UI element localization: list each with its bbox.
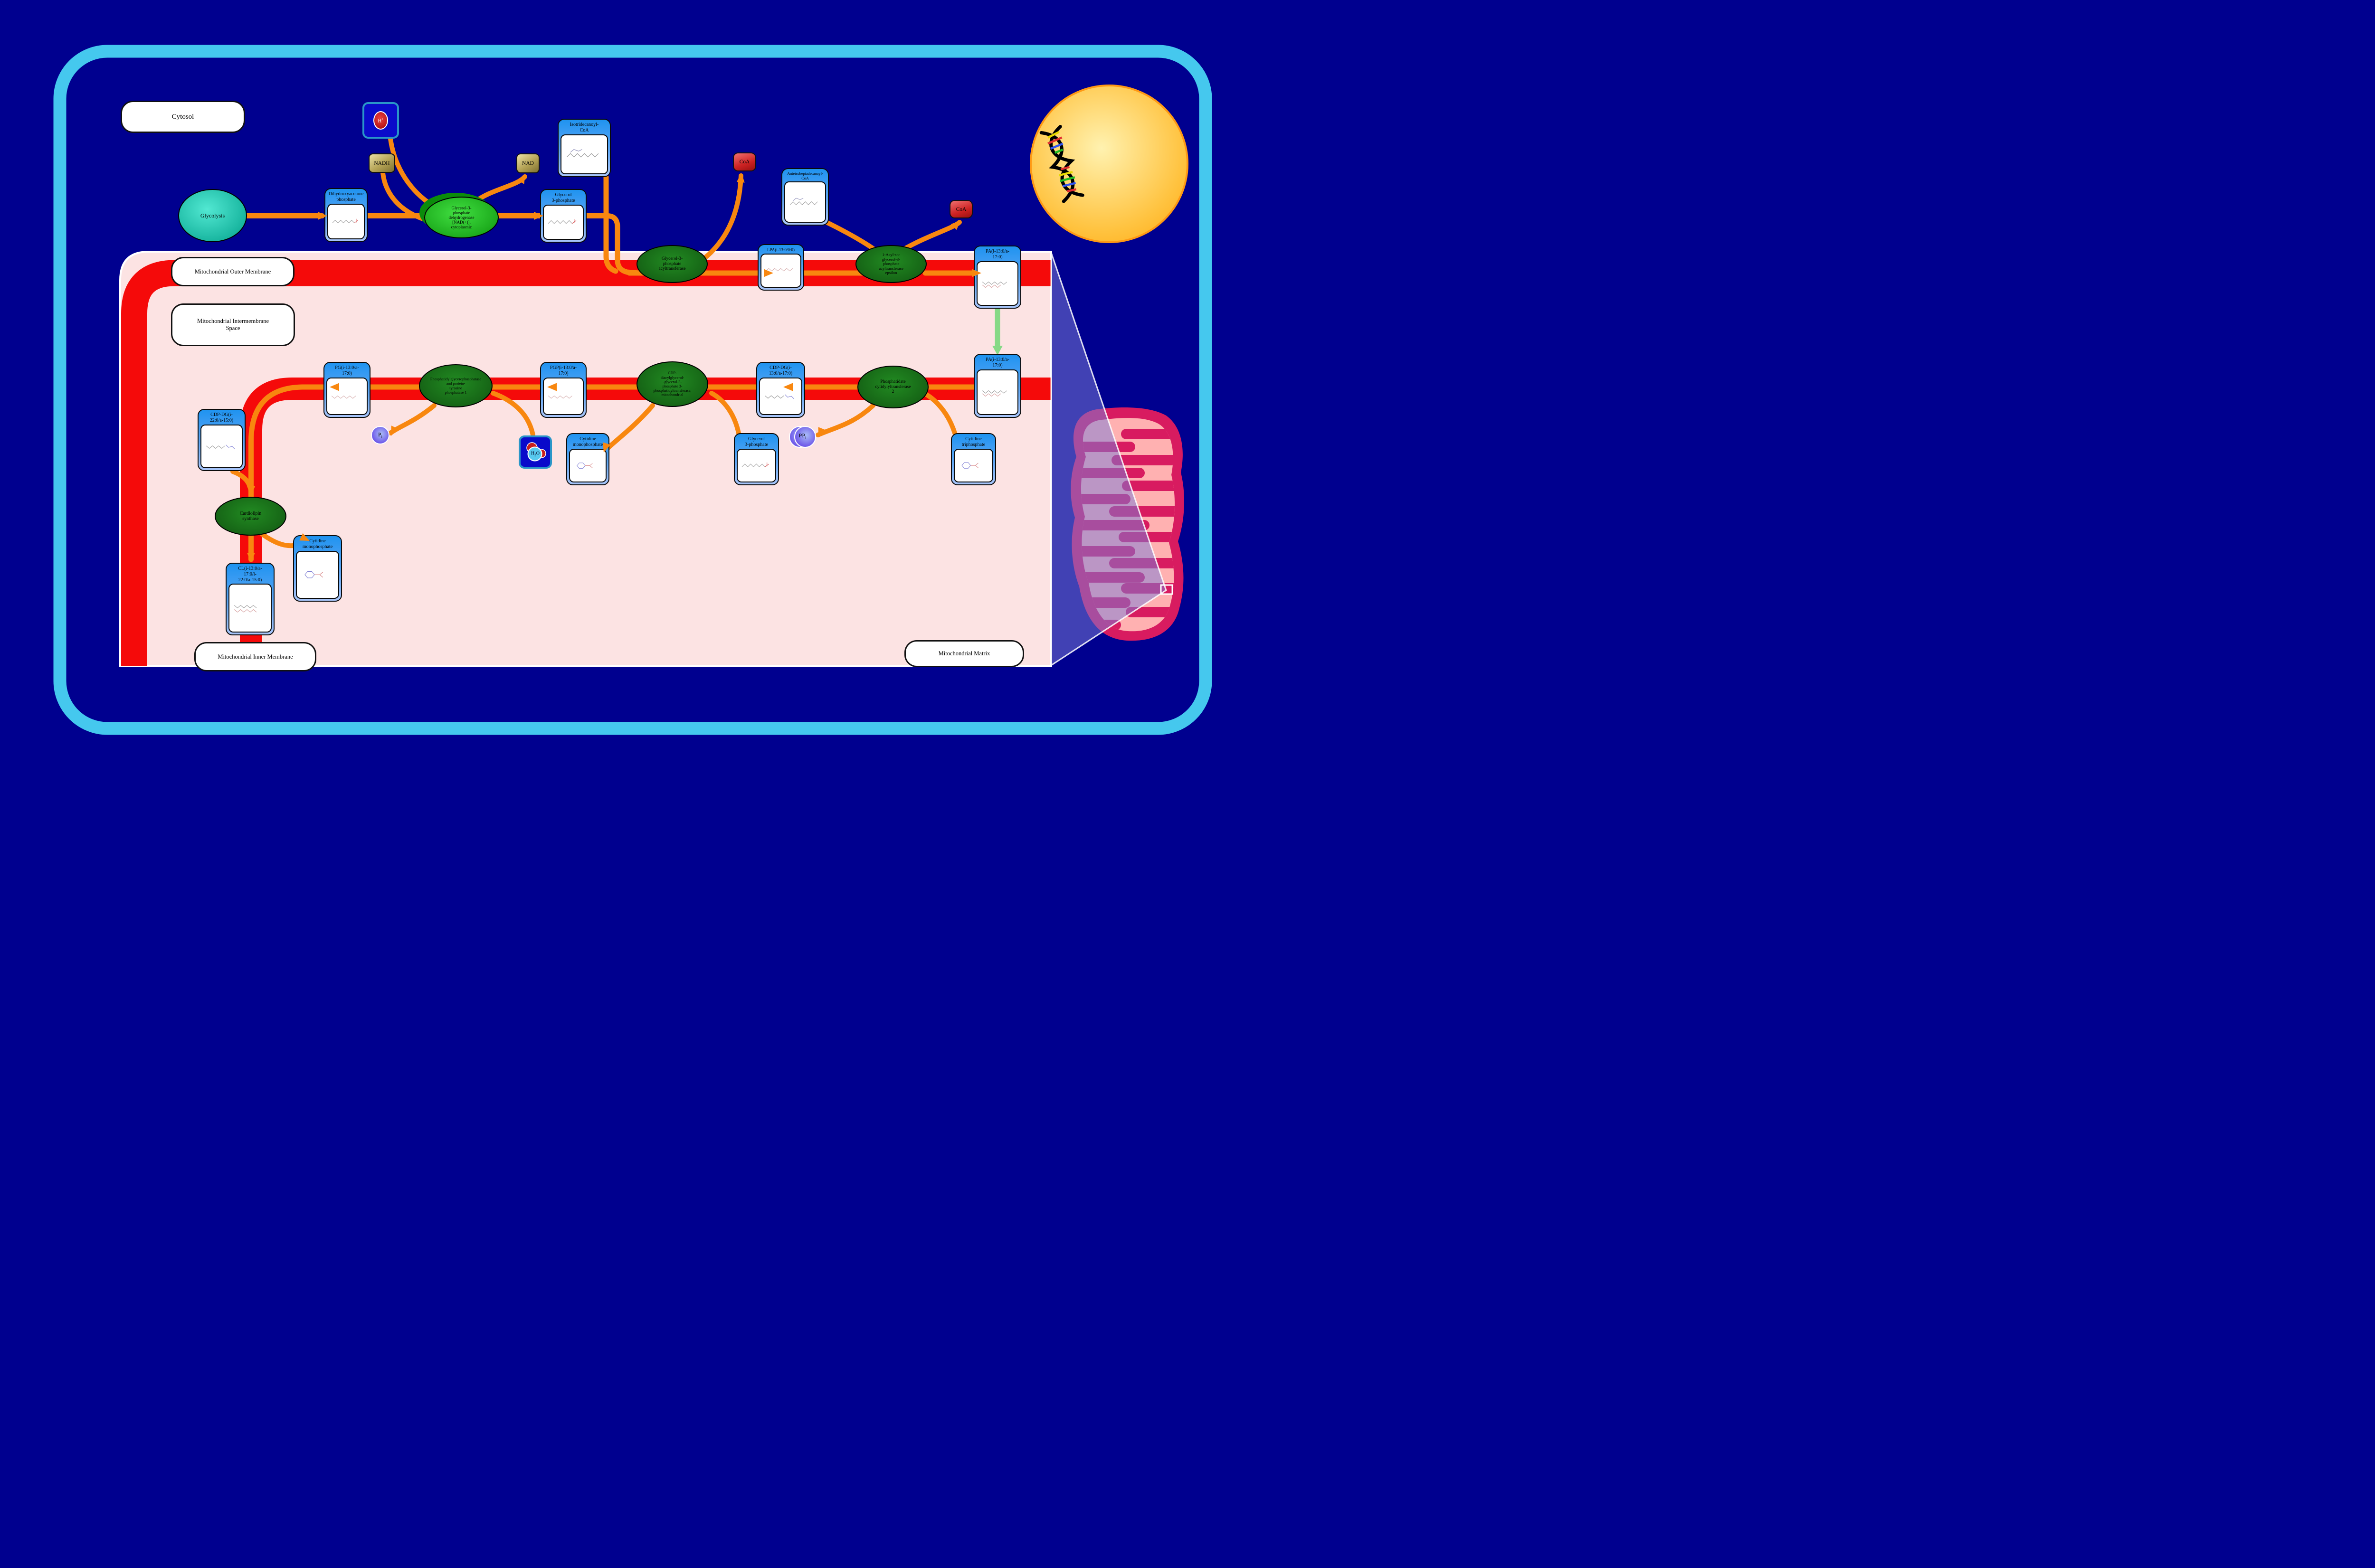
enzyme-cdp-dag-phosphatidyltransferase[interactable]: CDP- diacylglycerol- -glycerol-3- phosph…	[636, 361, 708, 407]
cofactor-nad[interactable]: NAD	[516, 153, 540, 173]
molecule-structure-icon	[789, 197, 822, 208]
molecule-structure-icon	[301, 569, 334, 581]
dna-helix-icon	[1041, 126, 1083, 201]
proton-icon: H+	[373, 111, 388, 130]
zoom-beam	[1051, 253, 1166, 665]
process-glycolysis[interactable]: Glycolysis	[178, 189, 247, 242]
molecule-structure-icon	[573, 461, 603, 471]
label-intermembrane-space: Mitochondrial Intermembrane Space	[171, 303, 295, 346]
metabolite-pgp[interactable]: PGP(i-13:0/a- 17:0)	[540, 362, 587, 418]
enzyme-phosphatidylglycerophosphatase[interactable]: Phosphatidylglycerophosphatase and prote…	[419, 364, 493, 407]
molecule-structure-icon	[332, 217, 361, 227]
metabolite-ctp[interactable]: Cytidine triphosphate	[951, 433, 996, 485]
label-matrix: Mitochondrial Matrix	[904, 640, 1024, 667]
label-cytosol: Cytosol	[121, 101, 245, 133]
metabolite-lpa[interactable]: LPA(i-13:0/0:0)	[758, 244, 804, 291]
metabolite-g3p-matrix[interactable]: Glycerol 3-phosphate	[734, 433, 779, 485]
molecule-structure-icon	[566, 148, 603, 161]
enzyme-phosphatidate-cytidylyltransferase[interactable]: Phosphatidate cytidylyltransferase 2	[857, 366, 929, 408]
molecule-structure-icon	[981, 278, 1014, 289]
enzyme-agpat-epsilon[interactable]: 1-Acyl-sn- glycerol-3- phosphate acyltra…	[855, 245, 927, 283]
metabolite-cmp-upper[interactable]: Cytidine monophosphate	[566, 433, 609, 485]
cofactor-h2o[interactable]: H2O	[519, 435, 552, 469]
label-outer-membrane: Mitochondrial Outer Membrane	[171, 257, 294, 286]
metabolite-cardiolipin[interactable]: CL(i-13:0/a- 17:0/i- 22:0/a-15:0)	[226, 563, 275, 635]
transport-arrow	[992, 309, 1003, 355]
pathway-diagram: Cytosol Mitochondrial Outer Membrane Mit…	[0, 0, 1282, 784]
inner-membrane-band	[251, 389, 1052, 667]
metabolite-cmp-lower[interactable]: Cytidine monophosphate	[293, 535, 342, 602]
enzyme-cardiolipin-synthase[interactable]: Cardiolipin synthase	[215, 497, 286, 536]
metabolite-isotridecanoyl-coa[interactable]: Isotridecanoyl- CoA	[558, 119, 611, 177]
molecule-structure-icon	[547, 217, 579, 227]
molecule-structure-icon	[741, 460, 772, 471]
molecule-structure-icon	[764, 390, 798, 402]
nucleus-illustration	[1031, 85, 1187, 242]
cofactor-pi[interactable]: Pi	[371, 426, 389, 444]
metabolite-pg[interactable]: PG(i-13:0/a- 17:0)	[323, 362, 370, 418]
cofactor-coa-2[interactable]: CoA	[950, 200, 973, 218]
molecule-structure-icon	[765, 265, 797, 276]
metabolite-pa-inner[interactable]: PA(i-13:0/a- 17:0)	[974, 354, 1021, 418]
enzyme-g3p-acyltransferase[interactable]: Glycerol-3- phosphate acyltransferase	[636, 245, 708, 283]
cristae	[1071, 429, 1183, 630]
molecule-structure-icon	[205, 441, 238, 452]
cofactor-ppi[interactable]: PPi	[789, 426, 816, 446]
zoom-marker	[1161, 585, 1172, 594]
label-inner-membrane: Mitochondrial Inner Membrane	[194, 642, 316, 671]
mitochondrion-illustration	[1071, 407, 1184, 641]
metabolite-cdp-dg-1[interactable]: CDP-DG(i- 13:0/a-17:0)	[756, 362, 805, 418]
cofactor-coa-1[interactable]: CoA	[733, 152, 756, 171]
metabolite-cdp-dg-2[interactable]: CDP-DG(i- 22:0/a-15:0)	[198, 409, 246, 471]
molecule-structure-icon	[331, 391, 363, 402]
metabolite-dhap[interactable]: Dihydroxyacetone phosphate	[324, 188, 368, 242]
metabolite-pa-outer[interactable]: PA(i-13:0/a- 17:0)	[974, 246, 1021, 309]
metabolite-anteisoheptadecanoyl-coa[interactable]: Anteisoheptadecanoyl- CoA	[781, 168, 829, 226]
cofactor-h-plus[interactable]: H+	[362, 102, 399, 139]
molecule-structure-icon	[981, 387, 1014, 398]
molecule-structure-icon	[233, 602, 267, 614]
enzyme-g3p-dehydrogenase[interactable]: Glycerol-3- phosphate dehydrogenase [NAD…	[424, 197, 499, 238]
molecule-structure-icon	[958, 460, 989, 471]
molecule-structure-icon	[547, 391, 579, 402]
cofactor-nadh[interactable]: NADH	[369, 153, 395, 173]
metabolite-g3p-cytosol[interactable]: Glycerol 3-phosphate	[540, 189, 587, 243]
